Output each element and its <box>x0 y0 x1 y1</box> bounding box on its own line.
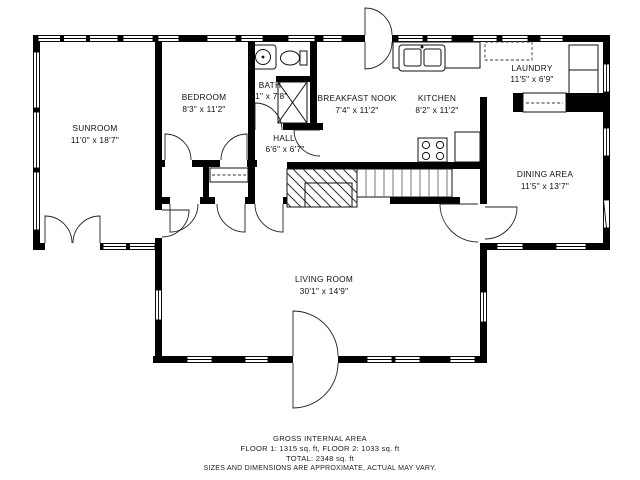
window <box>103 243 155 250</box>
window <box>288 36 315 42</box>
room-label-sunroom: SUNROOM <box>72 123 117 133</box>
window <box>38 35 118 42</box>
door-arc-front-out <box>293 363 338 408</box>
door-arc-nook-exterior-out <box>365 8 392 35</box>
window <box>395 357 420 363</box>
room-labels: SUNROOM 11'0" x 18'7" BEDROOM 8'3" x 11'… <box>71 63 573 296</box>
window <box>34 172 40 230</box>
room-label-kitchen: KITCHEN <box>418 93 456 103</box>
window <box>502 36 528 42</box>
footer-total-area: TOTAL: 2348 sq. ft <box>0 454 640 464</box>
door-arc-kitchen-living <box>440 204 478 242</box>
walls <box>33 35 610 363</box>
kitchen-sink-icon <box>399 45 445 71</box>
window <box>450 357 475 363</box>
window <box>481 292 487 322</box>
room-dims-hall: 6'6" x 6'7" <box>265 144 304 154</box>
window <box>473 36 497 42</box>
toilet-icon <box>281 51 308 65</box>
windows <box>34 35 610 363</box>
door-arc-closet-right <box>217 204 245 232</box>
footer-floor-areas: FLOOR 1: 1315 sq. ft, FLOOR 2: 1033 sq. … <box>0 444 640 454</box>
footer-note: GROSS INTERNAL AREA FLOOR 1: 1315 sq. ft… <box>0 434 640 474</box>
window <box>323 36 342 42</box>
window <box>604 200 610 228</box>
fireplace <box>287 169 357 207</box>
room-label-bedroom: BEDROOM <box>182 92 227 102</box>
room-dims-bath: 5'1" x 7'8" <box>248 91 287 101</box>
window <box>187 357 212 363</box>
window <box>156 290 162 320</box>
room-label-hall: HALL <box>273 133 295 143</box>
door-arc-closet-left <box>170 204 198 232</box>
window <box>245 357 268 363</box>
door-arc-dining <box>485 207 517 239</box>
room-dims-living: 30'1" x 14'9" <box>300 286 349 296</box>
room-dims-dining: 11'5" x 13'7" <box>521 181 569 191</box>
footer-gross-area: GROSS INTERNAL AREA <box>0 434 640 444</box>
window <box>398 36 423 42</box>
laundry-counter <box>485 42 532 60</box>
window <box>34 112 40 168</box>
room-dims-breakfast-nook: 7'4" x 11'2" <box>335 105 378 115</box>
room-dims-sunroom: 11'0" x 18'7" <box>71 135 119 145</box>
door-arc-hall-living <box>255 204 283 232</box>
window <box>427 36 452 42</box>
window <box>540 36 563 42</box>
door-arc-bedroom-right <box>221 134 247 160</box>
washer-dryer-icon <box>569 45 598 95</box>
kitchen-cabinet <box>455 132 480 162</box>
door-arc-french-right <box>73 216 100 243</box>
door-arc-french-left <box>45 216 72 243</box>
room-label-bath: BATH <box>259 80 282 90</box>
footer-disclaimer: SIZES AND DIMENSIONS ARE APPROXIMATE, AC… <box>0 464 640 474</box>
window <box>604 128 610 156</box>
window <box>367 357 392 363</box>
window <box>207 36 236 42</box>
laundry-lower-counter <box>523 93 566 112</box>
room-dims-bedroom: 8'3" x 11'2" <box>182 104 225 114</box>
window <box>556 244 586 250</box>
room-label-dining: DINING AREA <box>517 169 573 179</box>
door-arc-sunroom-living <box>162 210 189 237</box>
stairs <box>357 169 452 197</box>
floorplan-drawing: SUNROOM 11'0" x 18'7" BEDROOM 8'3" x 11'… <box>0 0 640 480</box>
floorplan-canvas: SUNROOM 11'0" x 18'7" BEDROOM 8'3" x 11'… <box>0 0 640 480</box>
window <box>34 52 40 108</box>
window <box>497 244 523 250</box>
door-arc-bedroom-left <box>165 134 191 160</box>
window <box>241 36 263 42</box>
room-label-laundry: LAUNDRY <box>511 63 552 73</box>
window <box>123 36 153 42</box>
door-openings <box>45 35 392 363</box>
room-label-living: LIVING ROOM <box>295 274 353 284</box>
door-arc-front-in <box>293 311 338 356</box>
room-label-breakfast-nook: BREAKFAST NOOK <box>318 93 397 103</box>
wardrobe <box>210 168 248 182</box>
window <box>604 64 610 92</box>
stove-icon <box>418 138 447 162</box>
room-dims-laundry: 11'5" x 6'9" <box>510 74 553 84</box>
door-arc-nook-exterior-in <box>365 42 392 69</box>
window <box>158 36 179 42</box>
room-dims-kitchen: 8'2" x 11'2" <box>415 105 458 115</box>
shower-icon <box>278 82 307 123</box>
